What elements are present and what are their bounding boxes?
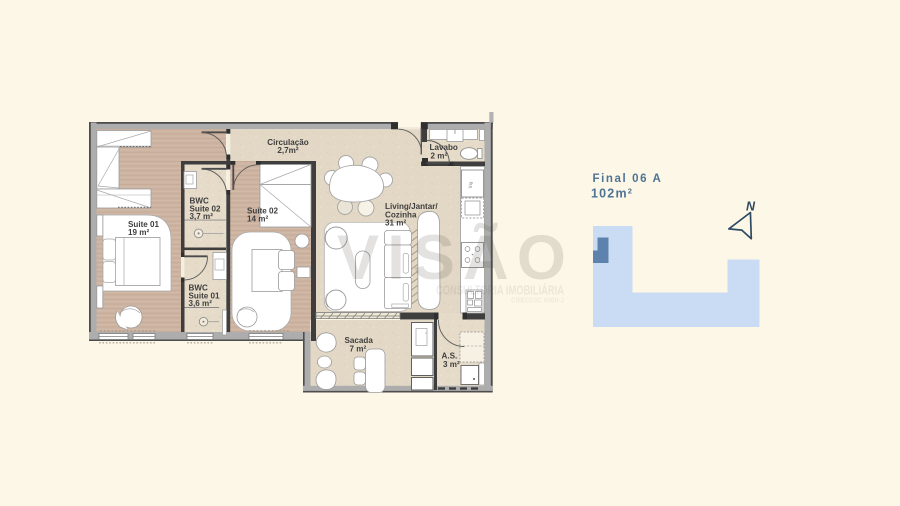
svg-text:2,7m²: 2,7m² [277,146,298,155]
svg-text:102m2: 102m2 [591,186,633,200]
svg-text:frig: frig [468,181,473,188]
svg-text:N: N [746,200,756,214]
svg-text:19 m²: 19 m² [128,228,149,237]
svg-text:CRECI/SC 0000-J: CRECI/SC 0000-J [511,298,564,305]
svg-text:2 m²: 2 m² [431,152,448,161]
svg-text:3 m²: 3 m² [443,360,460,369]
svg-text:3,6 m²: 3,6 m² [189,299,213,308]
svg-text:14 m²: 14 m² [247,214,268,223]
svg-text:CONSULTORIA IMOBILIÁRIA: CONSULTORIA IMOBILIÁRIA [436,283,564,298]
svg-text:7 m²: 7 m² [350,345,367,354]
svg-text:Final 06 A: Final 06 A [593,173,663,185]
svg-text:3,7 m²: 3,7 m² [190,212,214,221]
